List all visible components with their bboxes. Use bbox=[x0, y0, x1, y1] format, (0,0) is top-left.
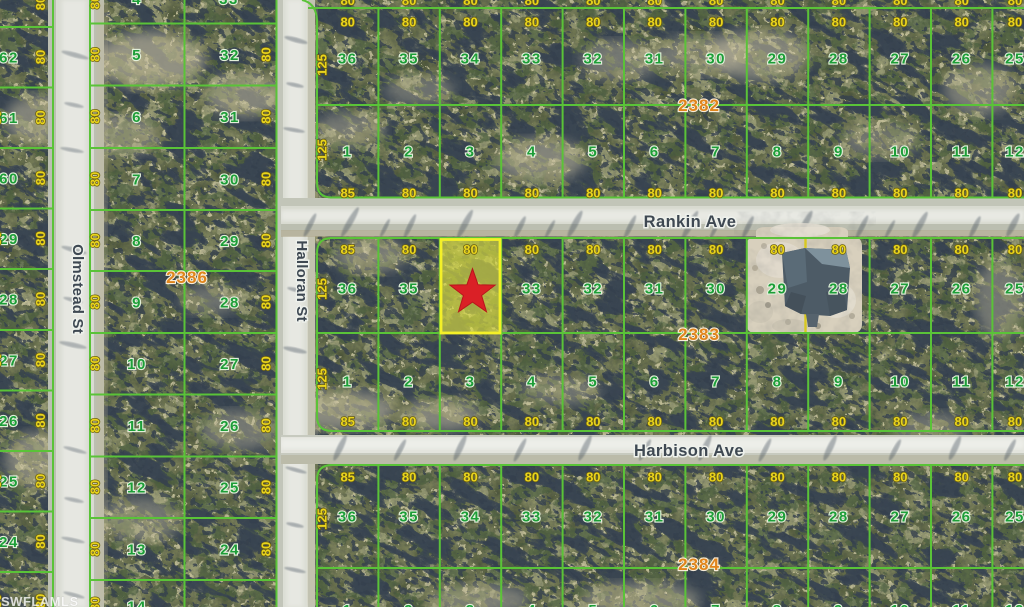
svg-text:9: 9 bbox=[132, 295, 142, 312]
svg-text:32: 32 bbox=[583, 281, 603, 298]
svg-text:11: 11 bbox=[128, 418, 147, 435]
svg-text:25: 25 bbox=[220, 480, 240, 497]
svg-text:10: 10 bbox=[890, 602, 910, 607]
svg-text:26: 26 bbox=[952, 51, 972, 68]
svg-text:33: 33 bbox=[522, 509, 542, 526]
svg-text:80: 80 bbox=[1008, 186, 1022, 201]
svg-text:32: 32 bbox=[220, 47, 240, 64]
svg-text:10: 10 bbox=[127, 356, 147, 373]
svg-text:34: 34 bbox=[461, 51, 481, 68]
svg-text:80: 80 bbox=[0, 474, 4, 488]
svg-text:30: 30 bbox=[220, 172, 240, 189]
svg-text:80: 80 bbox=[709, 0, 723, 8]
svg-text:28: 28 bbox=[829, 281, 849, 298]
svg-text:7: 7 bbox=[711, 374, 721, 391]
svg-text:80: 80 bbox=[88, 480, 103, 494]
svg-text:28: 28 bbox=[829, 509, 849, 526]
svg-text:26: 26 bbox=[0, 413, 19, 430]
svg-text:8: 8 bbox=[773, 144, 783, 161]
svg-text:80: 80 bbox=[0, 110, 4, 124]
svg-text:6: 6 bbox=[650, 374, 660, 391]
svg-text:26: 26 bbox=[952, 509, 972, 526]
svg-text:30: 30 bbox=[706, 281, 726, 298]
svg-text:9: 9 bbox=[834, 144, 844, 161]
svg-text:80: 80 bbox=[0, 231, 4, 245]
svg-text:85: 85 bbox=[340, 414, 354, 429]
svg-text:80: 80 bbox=[402, 470, 416, 485]
svg-text:28: 28 bbox=[220, 295, 240, 312]
svg-text:Olmstead St: Olmstead St bbox=[69, 244, 86, 334]
svg-text:2383: 2383 bbox=[678, 325, 720, 344]
svg-text:2386: 2386 bbox=[166, 268, 208, 287]
svg-text:5: 5 bbox=[588, 602, 598, 607]
svg-text:125: 125 bbox=[315, 508, 330, 530]
svg-text:80: 80 bbox=[88, 233, 103, 247]
svg-text:80: 80 bbox=[832, 15, 846, 30]
svg-text:80: 80 bbox=[525, 242, 539, 257]
svg-text:62: 62 bbox=[0, 50, 19, 67]
svg-text:5: 5 bbox=[588, 374, 598, 391]
svg-text:8: 8 bbox=[773, 602, 783, 607]
svg-text:4: 4 bbox=[527, 144, 537, 161]
svg-text:80: 80 bbox=[1008, 15, 1022, 30]
svg-text:125: 125 bbox=[315, 54, 330, 76]
svg-text:32: 32 bbox=[583, 509, 603, 526]
svg-text:27: 27 bbox=[890, 51, 910, 68]
svg-text:8: 8 bbox=[132, 233, 142, 250]
svg-text:80: 80 bbox=[463, 186, 477, 201]
svg-text:35: 35 bbox=[399, 51, 419, 68]
svg-text:2: 2 bbox=[404, 144, 414, 161]
svg-text:80: 80 bbox=[340, 15, 354, 30]
svg-text:3: 3 bbox=[466, 374, 476, 391]
svg-text:11: 11 bbox=[952, 374, 971, 391]
svg-text:80: 80 bbox=[647, 470, 661, 485]
svg-text:80: 80 bbox=[88, 109, 103, 123]
svg-text:80: 80 bbox=[770, 186, 784, 201]
svg-text:80: 80 bbox=[770, 242, 784, 257]
svg-text:80: 80 bbox=[525, 470, 539, 485]
svg-text:80: 80 bbox=[33, 50, 48, 64]
svg-text:33: 33 bbox=[522, 281, 542, 298]
svg-text:9: 9 bbox=[834, 602, 844, 607]
svg-text:80: 80 bbox=[259, 295, 274, 309]
svg-text:1: 1 bbox=[343, 602, 353, 607]
svg-text:80: 80 bbox=[647, 414, 661, 429]
svg-text:11: 11 bbox=[952, 144, 971, 161]
svg-text:6: 6 bbox=[132, 109, 142, 126]
svg-text:SWFLAMLS: SWFLAMLS bbox=[1, 594, 79, 607]
svg-text:80: 80 bbox=[88, 0, 103, 9]
svg-text:2: 2 bbox=[404, 602, 414, 607]
svg-text:28: 28 bbox=[0, 292, 19, 309]
svg-text:5: 5 bbox=[588, 144, 598, 161]
svg-text:80: 80 bbox=[33, 231, 48, 245]
svg-text:85: 85 bbox=[340, 470, 354, 485]
svg-text:6: 6 bbox=[650, 602, 660, 607]
svg-text:25: 25 bbox=[1005, 51, 1024, 68]
svg-text:80: 80 bbox=[709, 186, 723, 201]
svg-text:80: 80 bbox=[525, 414, 539, 429]
svg-text:3: 3 bbox=[466, 602, 476, 607]
svg-text:8: 8 bbox=[773, 374, 783, 391]
svg-text:5: 5 bbox=[132, 47, 142, 64]
svg-text:80: 80 bbox=[770, 15, 784, 30]
svg-text:80: 80 bbox=[259, 172, 274, 186]
svg-text:28: 28 bbox=[829, 51, 849, 68]
svg-text:12: 12 bbox=[1005, 374, 1024, 391]
svg-text:31: 31 bbox=[645, 281, 665, 298]
svg-text:12: 12 bbox=[1005, 602, 1024, 607]
svg-text:80: 80 bbox=[1008, 414, 1022, 429]
svg-text:31: 31 bbox=[220, 109, 240, 126]
svg-text:80: 80 bbox=[832, 470, 846, 485]
svg-text:9: 9 bbox=[834, 374, 844, 391]
svg-text:24: 24 bbox=[220, 542, 240, 559]
svg-text:4: 4 bbox=[132, 0, 142, 8]
svg-text:80: 80 bbox=[340, 0, 354, 8]
svg-text:35: 35 bbox=[399, 509, 419, 526]
svg-text:32: 32 bbox=[583, 51, 603, 68]
svg-text:80: 80 bbox=[893, 470, 907, 485]
svg-text:4: 4 bbox=[527, 374, 537, 391]
svg-text:11: 11 bbox=[952, 602, 971, 607]
svg-text:80: 80 bbox=[586, 186, 600, 201]
svg-text:2382: 2382 bbox=[678, 96, 720, 115]
svg-text:80: 80 bbox=[88, 356, 103, 370]
svg-text:80: 80 bbox=[647, 15, 661, 30]
svg-text:80: 80 bbox=[33, 413, 48, 427]
svg-text:3: 3 bbox=[466, 144, 476, 161]
svg-text:80: 80 bbox=[832, 414, 846, 429]
svg-text:31: 31 bbox=[645, 51, 665, 68]
svg-text:80: 80 bbox=[259, 109, 274, 123]
svg-text:29: 29 bbox=[768, 509, 788, 526]
svg-text:80: 80 bbox=[259, 47, 274, 61]
svg-text:Harbison Ave: Harbison Ave bbox=[634, 442, 744, 460]
svg-text:80: 80 bbox=[463, 242, 477, 257]
svg-text:29: 29 bbox=[768, 51, 788, 68]
svg-text:80: 80 bbox=[832, 0, 846, 8]
svg-text:80: 80 bbox=[463, 15, 477, 30]
svg-text:80: 80 bbox=[402, 15, 416, 30]
svg-text:125: 125 bbox=[315, 139, 330, 161]
svg-text:125: 125 bbox=[315, 368, 330, 390]
svg-text:10: 10 bbox=[890, 144, 910, 161]
svg-text:2384: 2384 bbox=[678, 555, 720, 574]
svg-text:33: 33 bbox=[522, 51, 542, 68]
svg-text:80: 80 bbox=[402, 414, 416, 429]
svg-text:80: 80 bbox=[893, 242, 907, 257]
svg-text:80: 80 bbox=[954, 186, 968, 201]
svg-text:Halloran St: Halloran St bbox=[293, 240, 310, 321]
svg-text:24: 24 bbox=[0, 534, 19, 551]
svg-text:80: 80 bbox=[709, 414, 723, 429]
svg-text:29: 29 bbox=[220, 233, 240, 250]
svg-text:80: 80 bbox=[525, 0, 539, 8]
svg-text:80: 80 bbox=[1008, 242, 1022, 257]
svg-text:80: 80 bbox=[88, 172, 103, 186]
svg-text:80: 80 bbox=[709, 242, 723, 257]
svg-text:30: 30 bbox=[706, 51, 726, 68]
svg-text:1: 1 bbox=[343, 144, 353, 161]
svg-text:80: 80 bbox=[259, 356, 274, 370]
svg-text:26: 26 bbox=[220, 418, 240, 435]
svg-text:27: 27 bbox=[890, 509, 910, 526]
svg-text:4: 4 bbox=[527, 602, 537, 607]
svg-text:80: 80 bbox=[954, 242, 968, 257]
svg-text:80: 80 bbox=[525, 15, 539, 30]
svg-text:80: 80 bbox=[259, 418, 274, 432]
svg-text:80: 80 bbox=[88, 47, 103, 61]
svg-text:80: 80 bbox=[832, 242, 846, 257]
svg-text:125: 125 bbox=[315, 278, 330, 300]
svg-text:85: 85 bbox=[340, 242, 354, 257]
svg-text:6: 6 bbox=[650, 144, 660, 161]
svg-text:80: 80 bbox=[893, 15, 907, 30]
svg-text:80: 80 bbox=[33, 353, 48, 367]
svg-text:80: 80 bbox=[770, 414, 784, 429]
svg-text:12: 12 bbox=[127, 480, 147, 497]
svg-text:80: 80 bbox=[832, 186, 846, 201]
svg-text:30: 30 bbox=[706, 509, 726, 526]
svg-text:80: 80 bbox=[586, 15, 600, 30]
svg-text:10: 10 bbox=[890, 374, 910, 391]
svg-text:25: 25 bbox=[1005, 509, 1024, 526]
svg-text:80: 80 bbox=[402, 242, 416, 257]
svg-text:80: 80 bbox=[893, 186, 907, 201]
svg-text:80: 80 bbox=[88, 542, 103, 556]
svg-text:80: 80 bbox=[33, 474, 48, 488]
svg-text:29: 29 bbox=[768, 281, 788, 298]
svg-text:7: 7 bbox=[711, 602, 721, 607]
svg-text:80: 80 bbox=[33, 534, 48, 548]
svg-text:80: 80 bbox=[259, 233, 274, 247]
svg-text:80: 80 bbox=[954, 470, 968, 485]
svg-text:80: 80 bbox=[259, 480, 274, 494]
svg-text:80: 80 bbox=[33, 292, 48, 306]
svg-text:80: 80 bbox=[893, 0, 907, 8]
svg-text:80: 80 bbox=[647, 186, 661, 201]
svg-text:80: 80 bbox=[586, 470, 600, 485]
svg-text:80: 80 bbox=[709, 470, 723, 485]
svg-text:80: 80 bbox=[402, 186, 416, 201]
svg-text:80: 80 bbox=[1008, 0, 1022, 8]
svg-text:85: 85 bbox=[340, 186, 354, 201]
svg-text:80: 80 bbox=[463, 470, 477, 485]
svg-text:14: 14 bbox=[127, 599, 147, 607]
svg-text:80: 80 bbox=[33, 110, 48, 124]
svg-text:80: 80 bbox=[647, 0, 661, 8]
svg-text:80: 80 bbox=[88, 597, 103, 607]
svg-text:25: 25 bbox=[1005, 281, 1024, 298]
svg-text:80: 80 bbox=[0, 353, 4, 367]
svg-text:7: 7 bbox=[132, 172, 142, 189]
svg-text:80: 80 bbox=[770, 470, 784, 485]
svg-text:80: 80 bbox=[770, 0, 784, 8]
svg-text:80: 80 bbox=[88, 418, 103, 432]
svg-text:36: 36 bbox=[338, 509, 358, 526]
svg-text:80: 80 bbox=[586, 242, 600, 257]
svg-text:27: 27 bbox=[890, 281, 910, 298]
svg-text:80: 80 bbox=[463, 0, 477, 8]
svg-text:2: 2 bbox=[404, 374, 414, 391]
svg-text:36: 36 bbox=[338, 281, 358, 298]
svg-text:80: 80 bbox=[954, 15, 968, 30]
svg-text:31: 31 bbox=[645, 509, 665, 526]
svg-text:12: 12 bbox=[1005, 144, 1024, 161]
svg-text:80: 80 bbox=[954, 0, 968, 8]
svg-text:80: 80 bbox=[954, 414, 968, 429]
svg-text:80: 80 bbox=[709, 15, 723, 30]
svg-text:1: 1 bbox=[343, 374, 353, 391]
svg-text:80: 80 bbox=[88, 295, 103, 309]
svg-text:80: 80 bbox=[525, 186, 539, 201]
svg-text:80: 80 bbox=[586, 0, 600, 8]
svg-text:7: 7 bbox=[711, 144, 721, 161]
svg-text:34: 34 bbox=[461, 509, 481, 526]
svg-text:80: 80 bbox=[402, 0, 416, 8]
svg-text:Rankin Ave: Rankin Ave bbox=[644, 213, 737, 231]
svg-text:80: 80 bbox=[893, 414, 907, 429]
svg-text:80: 80 bbox=[463, 414, 477, 429]
svg-text:60: 60 bbox=[0, 171, 19, 188]
svg-text:33: 33 bbox=[219, 0, 239, 8]
svg-text:80: 80 bbox=[259, 542, 274, 556]
svg-text:80: 80 bbox=[586, 414, 600, 429]
svg-text:13: 13 bbox=[127, 542, 147, 559]
svg-text:80: 80 bbox=[647, 242, 661, 257]
svg-text:36: 36 bbox=[338, 51, 358, 68]
svg-text:27: 27 bbox=[220, 356, 240, 373]
svg-text:80: 80 bbox=[33, 0, 48, 10]
svg-text:80: 80 bbox=[33, 171, 48, 185]
svg-text:26: 26 bbox=[952, 281, 972, 298]
svg-text:80: 80 bbox=[1008, 470, 1022, 485]
svg-text:35: 35 bbox=[399, 281, 419, 298]
